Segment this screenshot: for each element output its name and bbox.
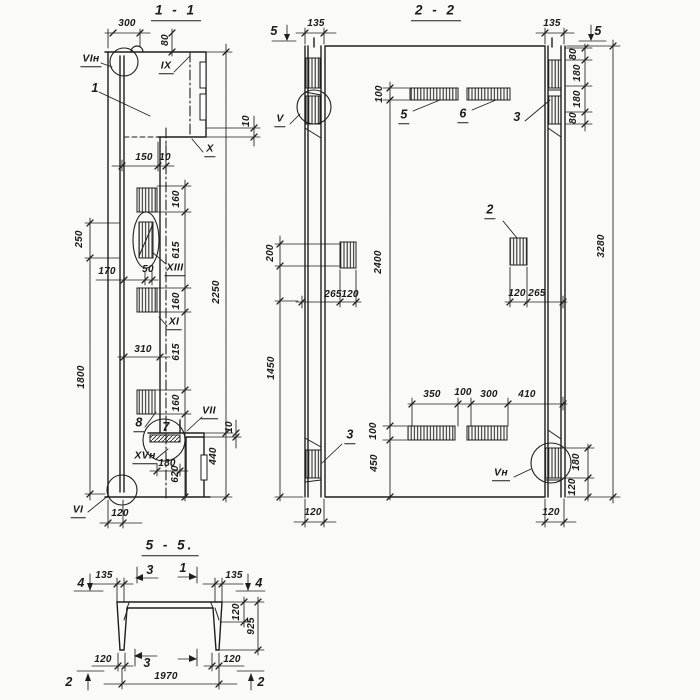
- section-5-5-linework: [74, 567, 265, 690]
- cut-arrow: [85, 673, 91, 681]
- embedded-plate: [545, 448, 561, 478]
- embedded-plate: [467, 426, 507, 440]
- embedded-plate-6: [467, 88, 510, 100]
- seat-plate: [150, 435, 180, 442]
- embedded-plate: [306, 450, 321, 478]
- section-1-1-linework: [85, 29, 260, 528]
- cut-arrow: [245, 583, 251, 591]
- drawing-canvas: 1 - 1 2 - 2 5 - 5. 30080VIн1IX10X1501016…: [0, 0, 700, 700]
- cut-arrow: [87, 583, 93, 591]
- cut-arrow: [189, 573, 197, 580]
- cut-arrow: [248, 673, 254, 681]
- cut-arrow: [189, 655, 197, 662]
- embedded-plate: [137, 188, 157, 212]
- embedded-plate: [548, 60, 561, 88]
- embedded-plate-2: [510, 238, 527, 265]
- embedded-plate: [306, 96, 320, 124]
- drawing-linework: [0, 0, 700, 700]
- cut-arrow: [284, 34, 290, 41]
- section-2-2-linework: [272, 25, 620, 527]
- embedded-plate: [137, 390, 155, 414]
- cut-arrow: [135, 574, 143, 581]
- embedded-plate-2: [340, 242, 356, 268]
- embedded-plate-5: [410, 88, 458, 100]
- embedded-plate: [137, 288, 157, 312]
- cut-arrow: [588, 34, 594, 41]
- embedded-plate: [306, 58, 320, 88]
- detail-circle-vi: [107, 475, 137, 505]
- embedded-plate: [408, 426, 455, 440]
